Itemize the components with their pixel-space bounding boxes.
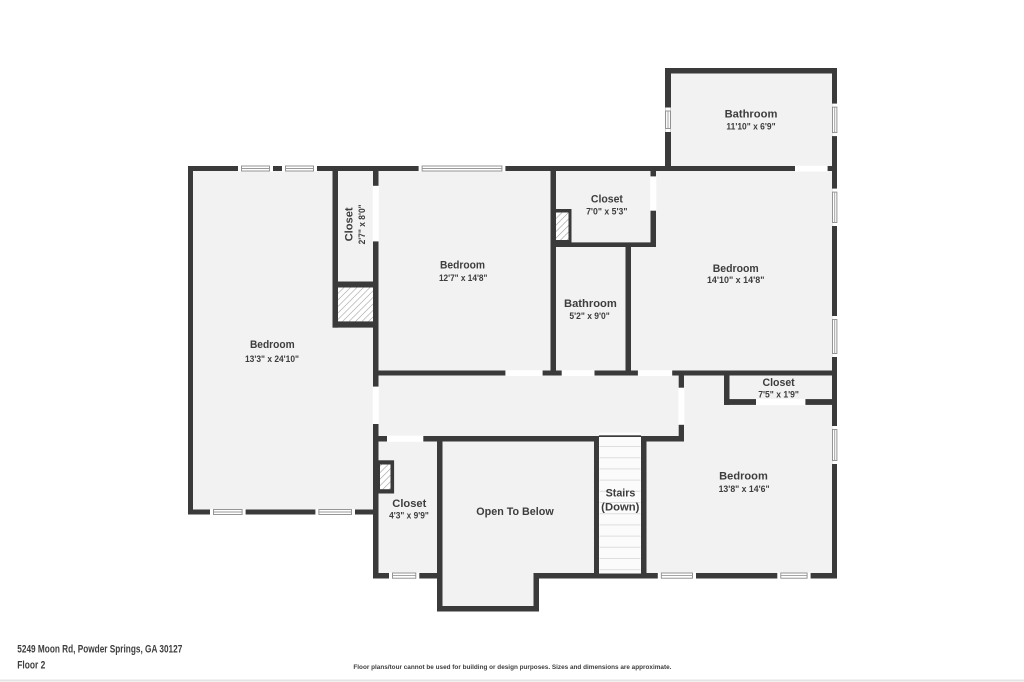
svg-text:11'10" x 6'9": 11'10" x 6'9" (726, 121, 775, 131)
svg-text:13'3" x 24'10": 13'3" x 24'10" (245, 354, 299, 364)
svg-text:(Down): (Down) (601, 501, 640, 513)
svg-text:Closet: Closet (343, 207, 355, 241)
svg-text:13'8" x 14'6": 13'8" x 14'6" (719, 484, 770, 494)
svg-text:Open To Below: Open To Below (476, 506, 554, 518)
svg-text:12'7" x 14'8": 12'7" x 14'8" (439, 273, 488, 283)
svg-text:Bathroom: Bathroom (564, 298, 617, 310)
svg-text:Bathroom: Bathroom (725, 108, 778, 120)
svg-text:Floor 2: Floor 2 (17, 660, 45, 672)
svg-text:Floor plans/tour cannot be use: Floor plans/tour cannot be used for buil… (353, 664, 671, 671)
svg-text:4'3" x 9'9": 4'3" x 9'9" (389, 510, 429, 520)
svg-text:Bedroom: Bedroom (440, 260, 485, 272)
svg-text:5249 Moon Rd, Powder Springs,: 5249 Moon Rd, Powder Springs, GA 30127 (17, 644, 182, 656)
svg-text:Bedroom: Bedroom (250, 339, 295, 351)
svg-text:Closet: Closet (392, 498, 426, 510)
svg-text:Closet: Closet (763, 377, 796, 389)
svg-text:Stairs: Stairs (606, 488, 636, 500)
svg-text:14'10" x 14'8": 14'10" x 14'8" (707, 275, 765, 285)
svg-text:7'0" x 5'3": 7'0" x 5'3" (586, 207, 627, 217)
svg-text:5'2" x 9'0": 5'2" x 9'0" (569, 311, 609, 321)
svg-text:7'5" x 1'9": 7'5" x 1'9" (758, 390, 799, 400)
svg-text:Bedroom: Bedroom (719, 470, 768, 482)
svg-text:Bedroom: Bedroom (713, 263, 759, 275)
svg-text:2'7" x 8'0": 2'7" x 8'0" (357, 204, 367, 244)
svg-text:Closet: Closet (591, 194, 623, 206)
